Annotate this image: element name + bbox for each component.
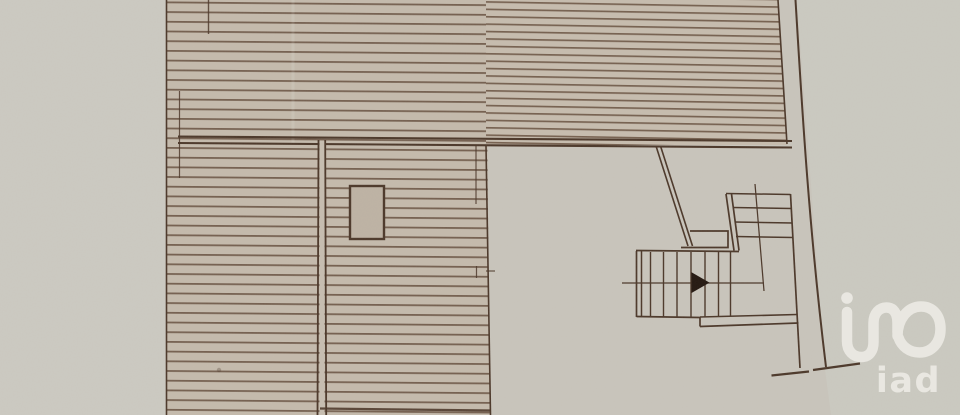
floorplan-canvas: iad — [0, 0, 960, 415]
floor-plan-scan: iad — [0, 0, 960, 415]
paper-grain — [0, 0, 960, 415]
iad-brand-text: iad — [876, 361, 941, 401]
